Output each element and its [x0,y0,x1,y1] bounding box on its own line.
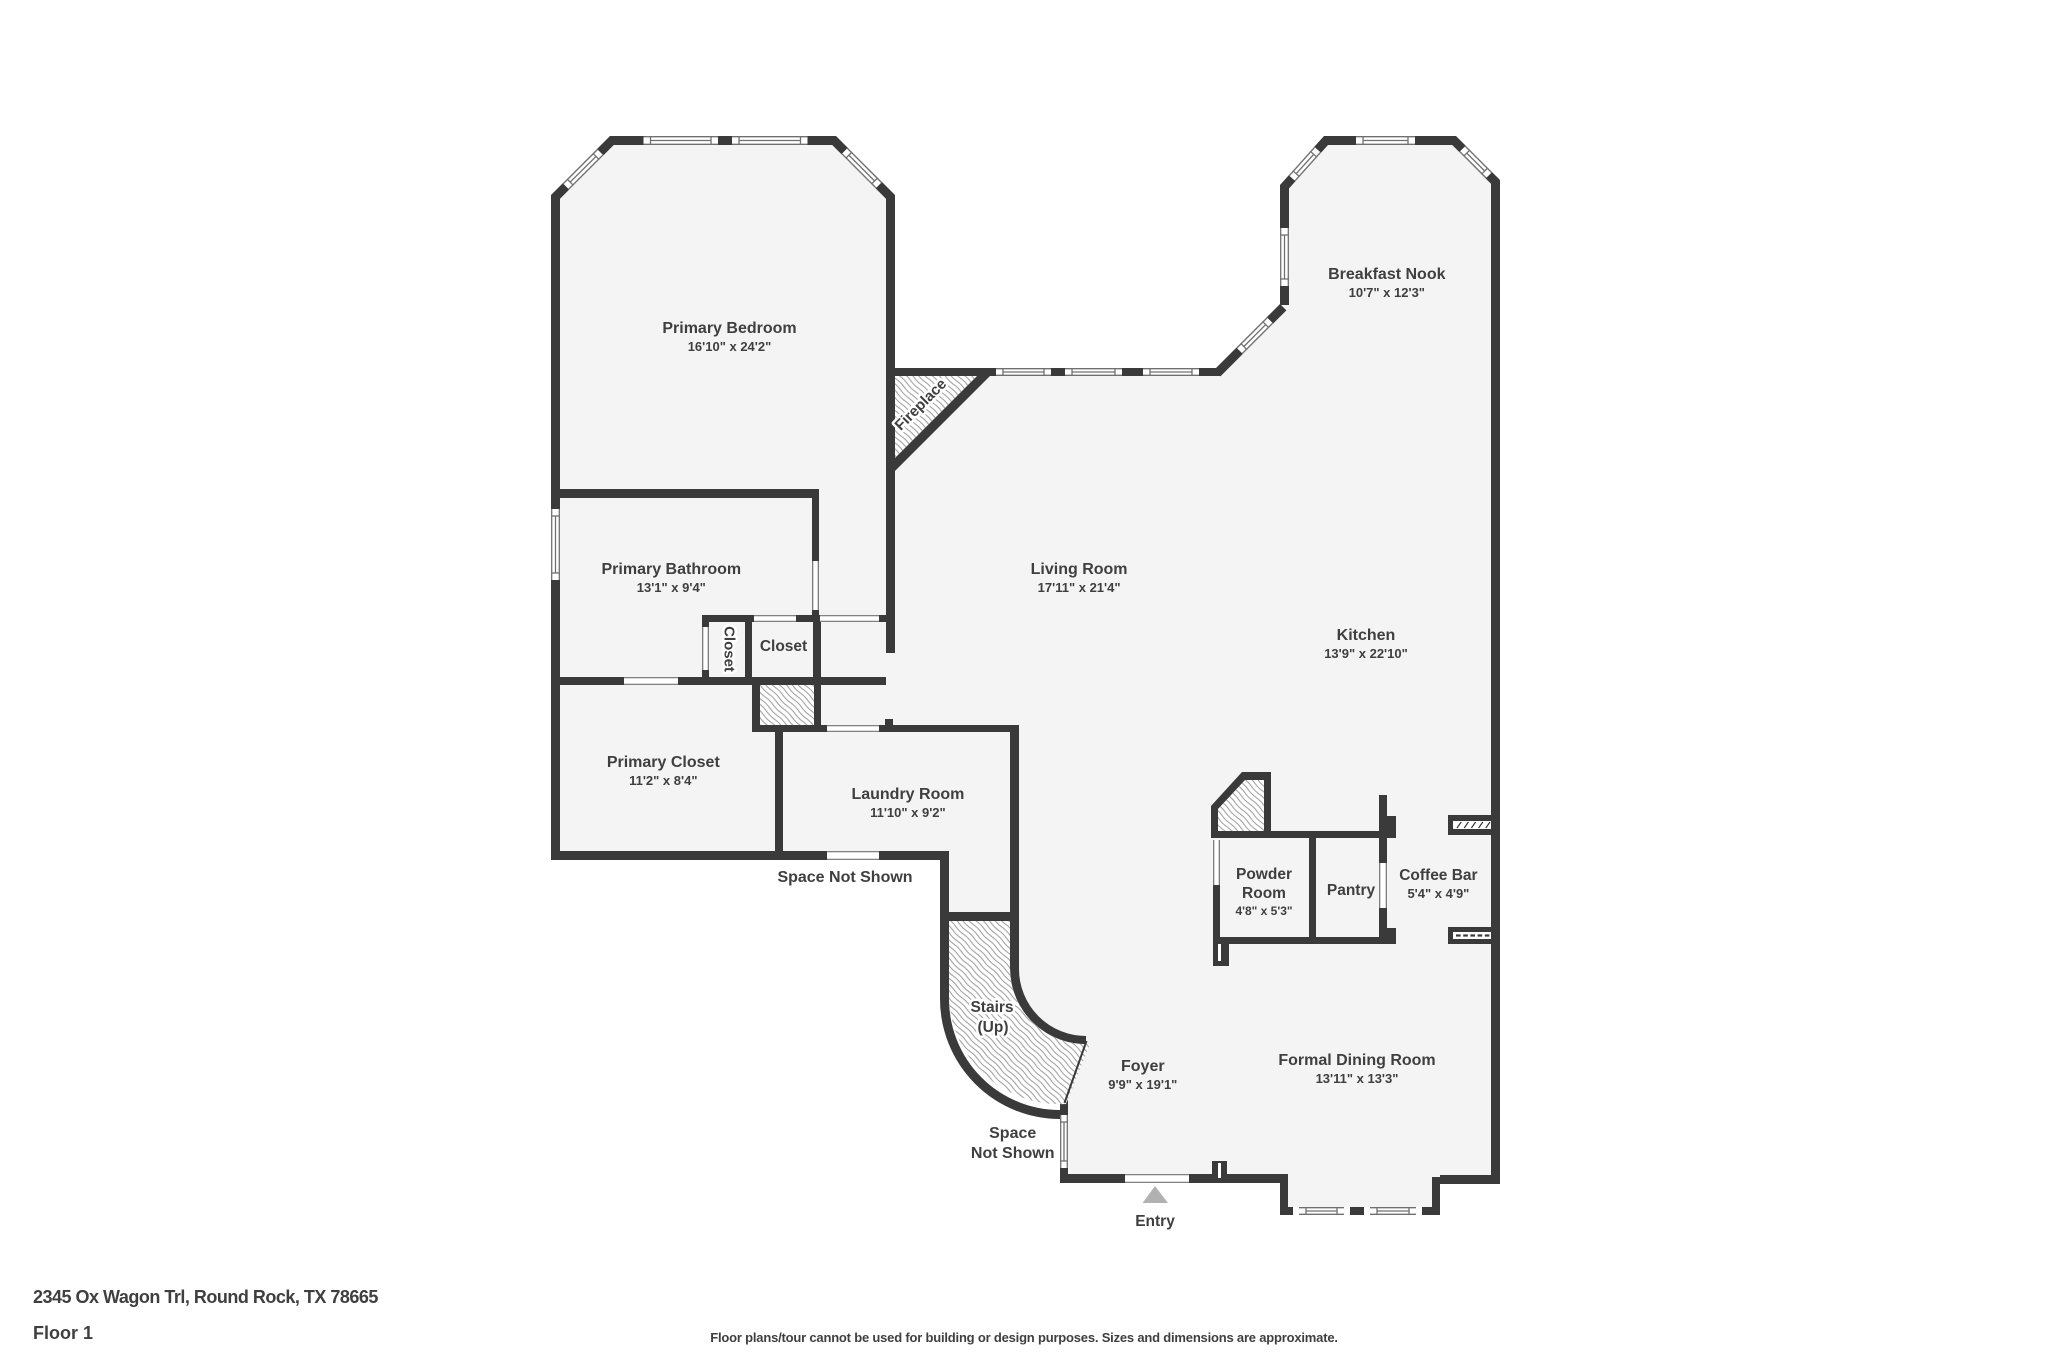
svg-text:17'11" x 21'4": 17'11" x 21'4" [1038,580,1121,595]
svg-text:Closet: Closet [760,638,807,655]
svg-text:13'11" x 13'3": 13'11" x 13'3" [1316,1071,1399,1086]
svg-text:Foyer: Foyer [1121,1058,1165,1075]
svg-text:Breakfast Nook: Breakfast Nook [1328,266,1445,283]
svg-text:16'10" x 24'2": 16'10" x 24'2" [688,339,772,354]
svg-text:9'9" x 19'1": 9'9" x 19'1" [1108,1077,1177,1092]
svg-text:Floor 1: Floor 1 [33,1323,93,1343]
svg-text:Floor plans/tour cannot be use: Floor plans/tour cannot be used for buil… [710,1330,1338,1345]
svg-text:11'2" x 8'4": 11'2" x 8'4" [629,773,697,788]
svg-text:Powder: Powder [1236,866,1292,883]
svg-text:Room: Room [1242,885,1286,902]
svg-text:Space: Space [989,1125,1036,1142]
svg-text:Formal Dining Room: Formal Dining Room [1278,1052,1435,1069]
svg-text:5'4" x 4'9": 5'4" x 4'9" [1407,886,1469,901]
svg-text:Primary Bathroom: Primary Bathroom [602,561,742,578]
svg-text:Laundry Room: Laundry Room [851,786,964,803]
svg-text:13'9" x 22'10": 13'9" x 22'10" [1324,646,1408,661]
svg-text:Space Not Shown: Space Not Shown [777,869,912,886]
svg-text:Pantry: Pantry [1327,882,1376,899]
svg-text:Primary Closet: Primary Closet [607,754,721,771]
svg-text:Closet: Closet [721,626,738,672]
svg-text:Kitchen: Kitchen [1337,627,1396,644]
svg-text:13'1" x 9'4": 13'1" x 9'4" [637,580,706,595]
svg-text:2345 Ox Wagon Trl, Round Rock,: 2345 Ox Wagon Trl, Round Rock, TX 78665 [33,1287,378,1307]
svg-text:Primary Bedroom: Primary Bedroom [662,320,796,337]
svg-text:(Up): (Up) [978,1019,1009,1036]
svg-text:Coffee Bar: Coffee Bar [1399,867,1477,884]
svg-text:4'8" x 5'3": 4'8" x 5'3" [1235,904,1292,918]
svg-text:Not Shown: Not Shown [971,1145,1055,1162]
svg-text:11'10" x 9'2": 11'10" x 9'2" [870,805,946,820]
svg-text:Stairs: Stairs [970,999,1013,1016]
svg-text:Entry: Entry [1135,1213,1175,1230]
svg-text:Living Room: Living Room [1031,561,1128,578]
svg-text:10'7" x 12'3": 10'7" x 12'3" [1349,285,1425,300]
